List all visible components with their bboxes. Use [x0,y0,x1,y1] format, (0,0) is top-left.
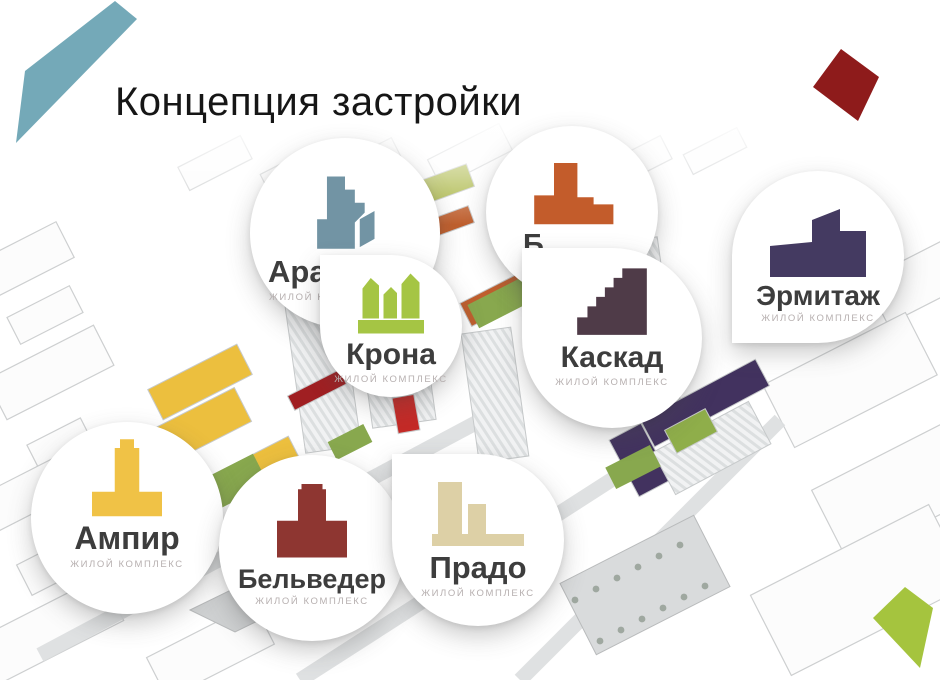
badge-ampir[interactable]: Ампир ЖИЛОЙ КОМПЛЕКС [31,422,223,614]
badge-kaskad[interactable]: Каскад ЖИЛОЙ КОМПЛЕКС [522,248,702,428]
badge-name: Каскад [561,342,664,374]
badge-hermitage[interactable]: Эрмитаж ЖИЛОЙ КОМПЛЕКС [732,171,904,343]
badge-subtitle: ЖИЛОЙ КОМПЛЕКС [334,374,448,385]
kaskad-building-icon [564,262,660,338]
prado-building-icon [425,474,531,548]
badge-name: Ара [268,256,327,289]
aragon-building-icon [300,170,390,252]
badge-belveder[interactable]: Бельведер ЖИЛОЙ КОМПЛЕКС [219,455,405,641]
badge-name: Эрмитаж [756,281,880,310]
badge-name: Ампир [74,522,179,556]
ampir-building-icon [75,434,179,518]
hermitage-building-icon [767,201,869,277]
belveder-building-icon [268,477,356,561]
badge-krona[interactable]: Крона ЖИЛОЙ КОМПЛЕКС [320,255,462,397]
badge-subtitle: ЖИЛОЙ КОМПЛЕКС [761,313,875,324]
badge-subtitle: ЖИЛОЙ КОМПЛЕКС [70,559,184,570]
krona-building-icon [350,263,432,335]
badge-prado[interactable]: Прадо ЖИЛОЙ КОМПЛЕКС [392,454,564,626]
badge-name: Бельведер [238,565,386,593]
badge-subtitle: ЖИЛОЙ КОМПЛЕКС [555,377,669,388]
badge-name: Прадо [429,552,526,585]
presentation-slide: Концепция застройки Ара ЖИЛОЙ КОМПЛЕКС Б… [0,0,940,680]
badge-subtitle: ЖИЛОЙ КОМПЛЕКС [255,596,369,607]
badge-name: Крона [346,339,436,371]
slide-title: Концепция застройки [115,80,522,125]
badge-subtitle: ЖИЛОЙ КОМПЛЕКС [421,588,535,599]
orange-building-icon [526,154,618,226]
